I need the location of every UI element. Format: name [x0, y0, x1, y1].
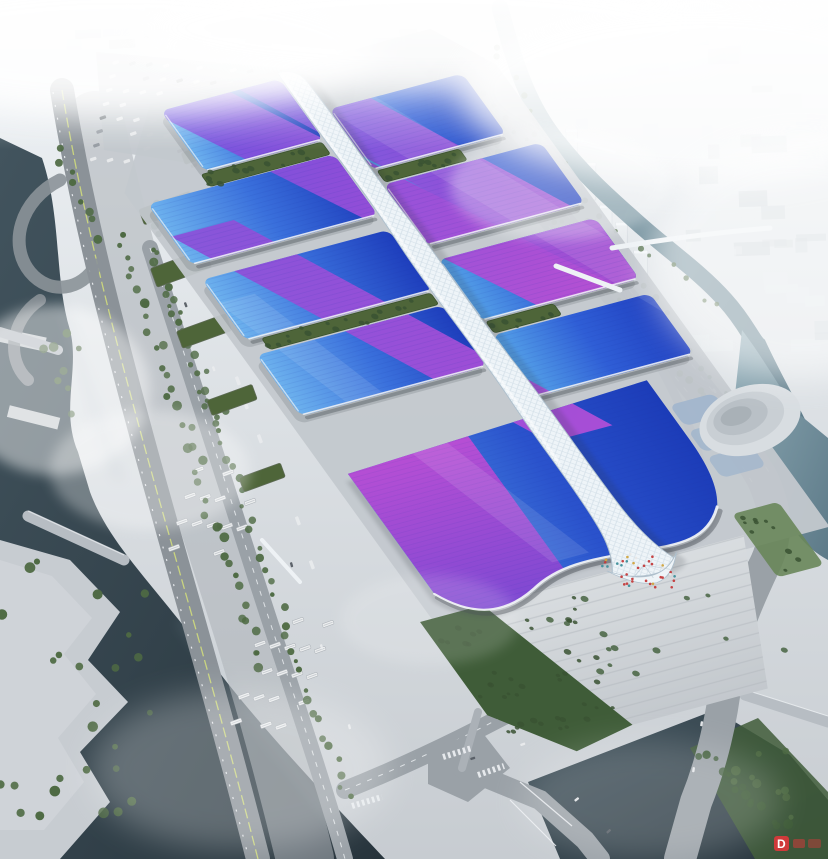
tree	[242, 617, 249, 624]
person-dot	[648, 560, 651, 563]
tree	[168, 385, 175, 392]
tree	[254, 663, 264, 673]
tree	[270, 592, 275, 597]
tree	[25, 562, 36, 573]
person-dot	[651, 555, 654, 558]
person-dot	[652, 582, 655, 585]
person-dot	[601, 565, 604, 568]
tree	[201, 387, 209, 395]
fog-patch	[50, 410, 250, 530]
tree	[268, 578, 275, 585]
tree	[256, 554, 264, 562]
tree	[788, 815, 793, 820]
tree	[120, 232, 126, 238]
tree	[281, 603, 289, 611]
tree	[225, 560, 232, 567]
aerial-rendering: cx D	[0, 0, 828, 859]
tree	[194, 370, 200, 376]
person-dot	[620, 564, 623, 567]
scene-svg: cx D	[0, 0, 828, 859]
tree	[143, 313, 149, 319]
tree	[212, 522, 221, 531]
tree	[154, 345, 160, 351]
tree	[219, 532, 229, 542]
tree	[245, 526, 253, 534]
tree	[93, 700, 100, 707]
fog-patch	[90, 690, 390, 850]
fog-patch	[450, 130, 670, 240]
tree	[98, 808, 109, 819]
person-dot	[673, 575, 676, 578]
tree	[149, 258, 158, 267]
tree	[88, 721, 99, 732]
person-dot	[626, 556, 629, 559]
tree	[16, 809, 24, 817]
person-dot	[605, 559, 608, 562]
tree	[257, 546, 262, 551]
tree	[172, 401, 182, 411]
tree	[262, 567, 268, 573]
person-dot	[631, 578, 634, 581]
tree	[638, 246, 644, 252]
tree	[253, 650, 259, 656]
tree	[159, 365, 165, 371]
tree	[167, 304, 171, 308]
tree	[214, 414, 220, 420]
person-dot	[631, 580, 634, 583]
tree	[133, 285, 141, 293]
tree	[78, 199, 83, 204]
tree	[296, 667, 302, 673]
tree	[163, 393, 170, 400]
tree	[93, 235, 102, 244]
tree	[117, 243, 122, 248]
watermark-glyph	[808, 839, 821, 848]
tree	[93, 589, 103, 599]
person-dot	[616, 562, 619, 565]
tree	[55, 159, 63, 167]
person-dot	[628, 584, 631, 587]
person-dot	[623, 583, 626, 586]
tree	[11, 782, 19, 790]
person-dot	[625, 573, 628, 576]
tree	[178, 310, 183, 315]
tree	[201, 403, 207, 409]
person-dot	[649, 583, 652, 586]
tree	[159, 341, 168, 350]
tree	[50, 786, 61, 797]
person-dot	[654, 586, 657, 589]
person-dot	[670, 586, 673, 589]
person-dot	[620, 575, 623, 578]
person-dot	[606, 565, 609, 568]
tree	[56, 652, 63, 659]
person-dot	[662, 567, 665, 570]
person-dot	[625, 560, 628, 563]
tree	[34, 559, 40, 565]
tree	[69, 179, 76, 186]
person-dot	[661, 564, 664, 567]
tree	[782, 793, 790, 801]
tree	[781, 786, 789, 794]
person-dot	[629, 553, 632, 556]
tree	[235, 582, 243, 590]
tree	[782, 748, 789, 755]
person-dot	[626, 582, 629, 585]
tree	[304, 688, 308, 692]
tree	[197, 390, 202, 395]
tree	[756, 751, 762, 757]
watermark-glyph	[793, 839, 805, 848]
person-dot	[659, 576, 662, 579]
fog-patch	[340, 575, 520, 665]
tree	[190, 351, 199, 360]
tree	[75, 663, 83, 671]
person-dot	[669, 571, 672, 574]
person-dot	[673, 579, 676, 582]
tree	[168, 310, 175, 317]
tree	[126, 632, 132, 638]
tree	[170, 296, 178, 304]
tree	[294, 659, 298, 663]
tree	[89, 216, 96, 223]
person-dot	[669, 573, 672, 576]
tree	[249, 516, 257, 524]
fog-patch	[520, 740, 780, 859]
tree	[50, 657, 56, 663]
tree	[252, 627, 261, 636]
tree	[85, 208, 93, 216]
person-dot	[635, 557, 638, 560]
tree	[128, 266, 134, 272]
tree	[242, 602, 249, 609]
tree	[154, 250, 159, 255]
person-dot	[645, 580, 648, 583]
person-dot	[632, 562, 635, 565]
tree	[188, 362, 193, 367]
tree	[112, 664, 120, 672]
tree	[125, 255, 130, 260]
person-dot	[643, 564, 646, 567]
tree	[141, 589, 149, 597]
tree	[287, 648, 294, 655]
person-dot	[621, 560, 624, 563]
tree	[220, 552, 228, 560]
tree	[281, 632, 289, 640]
person-dot	[604, 561, 607, 564]
tree	[126, 273, 132, 279]
person-dot	[637, 567, 640, 570]
tree	[143, 328, 151, 336]
person-dot	[651, 563, 654, 566]
tree	[56, 775, 63, 782]
watermark-letter: D	[777, 837, 786, 851]
tree	[204, 369, 209, 374]
palm-tree	[783, 819, 793, 829]
tree	[164, 372, 171, 379]
person-dot	[658, 564, 661, 567]
tree	[142, 301, 150, 309]
tree	[175, 319, 182, 326]
tree	[35, 811, 44, 820]
tree	[282, 622, 290, 630]
tree	[239, 504, 243, 508]
tree	[233, 573, 239, 579]
tree	[70, 169, 75, 174]
tree	[134, 653, 143, 662]
palm-tree	[772, 819, 778, 825]
tree	[162, 291, 169, 298]
tree	[83, 766, 91, 774]
